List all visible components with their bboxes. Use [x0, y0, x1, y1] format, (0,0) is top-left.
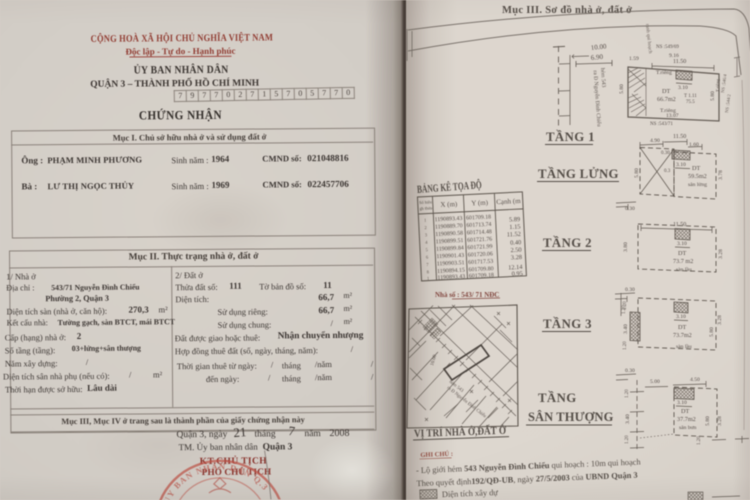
svg-text:0.30: 0.30 — [625, 368, 635, 374]
svg-text:1190893.43: 1190893.43 — [437, 274, 465, 281]
svg-text:1.20: 1.20 — [697, 436, 702, 445]
svg-text:T 1.11: T 1.11 — [684, 94, 697, 99]
svg-text:DT: DT — [678, 324, 686, 331]
svg-text:sàn lầu: sàn lầu — [676, 343, 692, 350]
svg-text:601713.74: 601713.74 — [466, 222, 491, 229]
svg-text:13.07: 13.07 — [666, 113, 679, 119]
svg-text:3.10: 3.10 — [677, 241, 687, 247]
svg-text:3.10: 3.10 — [676, 314, 686, 320]
svg-text:73.7m2: 73.7m2 — [673, 332, 692, 339]
svg-text:1190899.84: 1190899.84 — [436, 245, 464, 252]
svg-text:3.80: 3.80 — [623, 242, 629, 252]
svg-text:Diện tích xây dự: Diện tích xây dự — [442, 488, 499, 499]
svg-text:3.10: 3.10 — [678, 85, 688, 91]
svg-text:601721.99: 601721.99 — [467, 244, 492, 251]
svg-text:TẦNG: TẦNG — [538, 390, 577, 405]
svg-text:1.20: 1.20 — [623, 341, 628, 350]
svg-text:1190889.70: 1190889.70 — [435, 223, 463, 230]
svg-text:0.30: 0.30 — [625, 287, 635, 293]
svg-text:1.15: 1.15 — [509, 223, 521, 231]
svg-text:6: 6 — [426, 255, 429, 260]
svg-text:4: 4 — [425, 240, 428, 245]
svg-text:NS :546/4: NS :546/4 — [720, 73, 728, 93]
svg-text:8: 8 — [427, 269, 430, 274]
svg-text:10.00: 10.00 — [590, 42, 607, 52]
svg-text:3.28: 3.28 — [717, 315, 723, 325]
svg-text:5.00: 5.00 — [650, 379, 660, 385]
svg-text:1190893.43: 1190893.43 — [434, 216, 462, 223]
svg-text:10.00: 10.00 — [430, 354, 438, 367]
svg-text:3.10: 3.10 — [676, 162, 686, 168]
svg-text:NS :549/69: NS :549/69 — [656, 45, 679, 50]
svg-text:0.40: 0.40 — [510, 239, 522, 247]
svg-text:6.90: 6.90 — [590, 53, 604, 62]
svg-text:GHI CHÚ :: GHI CHÚ : — [420, 450, 453, 459]
svg-text:601717.53: 601717.53 — [468, 259, 493, 266]
svg-text:73.7 m2: 73.7 m2 — [673, 258, 693, 265]
svg-text:5.89: 5.89 — [509, 216, 521, 224]
svg-text:5.80: 5.80 — [619, 84, 625, 94]
svg-text:66.7m2: 66.7m2 — [657, 96, 676, 103]
svg-text:1.20: 1.20 — [625, 435, 630, 444]
svg-text:1.20: 1.20 — [625, 389, 630, 398]
svg-text:3.28: 3.28 — [511, 254, 523, 262]
svg-text:601709.18: 601709.18 — [469, 273, 494, 280]
svg-text:3.40: 3.40 — [625, 414, 631, 424]
svg-text:11.50: 11.50 — [673, 222, 686, 228]
svg-text:1: 1 — [424, 218, 427, 223]
svg-text:4.90: 4.90 — [650, 138, 660, 144]
svg-text:0.3: 0.3 — [664, 169, 671, 174]
svg-text:BẢNG KÊ TỌA ĐỘ: BẢNG KÊ TỌA ĐỘ — [416, 176, 482, 196]
svg-text:DT: DT — [692, 165, 700, 172]
svg-text:601709.18: 601709.18 — [466, 214, 491, 221]
svg-text:5.80: 5.80 — [705, 416, 711, 426]
svg-text:1190890.58: 1190890.58 — [435, 231, 463, 238]
svg-text:75.5: 75.5 — [686, 100, 695, 105]
svg-text:1190903.51: 1190903.51 — [437, 260, 465, 267]
svg-text:3: 3 — [425, 232, 428, 237]
svg-text:ra Đ Nguyễn Đình Chiểu: ra Đ Nguyễn Đình Chiểu — [446, 385, 488, 420]
svg-text:3.40: 3.40 — [623, 324, 629, 334]
svg-text:TẦNG LỬNG: TẦNG LỬNG — [538, 166, 619, 181]
svg-text:sàn lầu: sàn lầu — [676, 266, 692, 273]
svg-text:5.80: 5.80 — [709, 327, 715, 337]
svg-text:hẻm 543: hẻm 543 — [599, 68, 606, 88]
svg-text:gh thửa: gh thửa — [419, 205, 432, 211]
svg-text:3.78: 3.78 — [718, 170, 724, 180]
svg-text:DT: DT — [681, 408, 689, 415]
svg-text:NS :544/2: NS :544/2 — [724, 93, 732, 113]
svg-text:1.59: 1.59 — [629, 56, 639, 62]
svg-text:3.28: 3.28 — [717, 416, 723, 426]
svg-text:5.80: 5.80 — [634, 168, 640, 178]
svg-text:11.50: 11.50 — [673, 59, 686, 65]
svg-text:5: 5 — [425, 247, 428, 252]
svg-text:ranh qui hoạch: ranh qui hoạch — [644, 24, 652, 55]
svg-text:Nhà số : 543/ 71 NĐC: Nhà số : 543/ 71 NĐC — [435, 291, 499, 299]
svg-text:59.5m2: 59.5m2 — [688, 173, 707, 180]
svg-text:3.10: 3.10 — [677, 400, 687, 406]
svg-text:11.52: 11.52 — [507, 231, 521, 239]
svg-text:TẦNG 1: TẦNG 1 — [546, 129, 595, 144]
svg-text:sân bưn: sân bưn — [679, 425, 697, 431]
svg-text:601714.48: 601714.48 — [467, 229, 492, 236]
svg-text:1190901.43: 1190901.43 — [436, 253, 464, 260]
svg-text:Cạnh (m: Cạnh (m — [496, 197, 521, 206]
svg-text:DT: DT — [662, 88, 670, 95]
svg-text:0.95: 0.95 — [511, 270, 523, 278]
svg-text:NS :543/71: NS :543/71 — [650, 122, 673, 127]
svg-text:2: 2 — [424, 225, 427, 230]
svg-text:UY BAN NHAN DAN Q.3: UY BAN NHAN DAN Q.3 — [161, 461, 271, 500]
svg-text:SÂN THƯỢNG: SÂN THƯỢNG — [528, 410, 614, 424]
svg-text:1.20: 1.20 — [623, 301, 628, 310]
svg-text:T.riêng: T.riêng — [656, 70, 672, 76]
svg-text:1190899.51: 1190899.51 — [436, 238, 464, 245]
svg-text:X (m): X (m) — [440, 200, 458, 209]
svg-text:sân lửng: sân lửng — [688, 182, 707, 188]
svg-text:11.50: 11.50 — [673, 134, 686, 140]
svg-text:Số hiệu: Số hiệu — [419, 199, 433, 205]
svg-text:601720.06: 601720.06 — [468, 251, 493, 258]
svg-text:T.riêng: T.riêng — [715, 78, 720, 92]
svg-text:37.7m2: 37.7m2 — [677, 416, 696, 423]
svg-text:Y (m): Y (m) — [471, 199, 489, 208]
svg-text:2.50: 2.50 — [510, 247, 522, 255]
svg-text:TẦNG 2: TẦNG 2 — [543, 235, 592, 250]
svg-text:601721.76: 601721.76 — [467, 237, 492, 244]
svg-text:3.28: 3.28 — [718, 249, 724, 259]
svg-text:4.50: 4.50 — [690, 377, 700, 383]
svg-text:7: 7 — [426, 262, 429, 267]
svg-text:DT: DT — [678, 250, 686, 257]
svg-text:TẦNG 3: TẦNG 3 — [543, 316, 592, 331]
svg-text:0.30: 0.30 — [661, 151, 670, 156]
